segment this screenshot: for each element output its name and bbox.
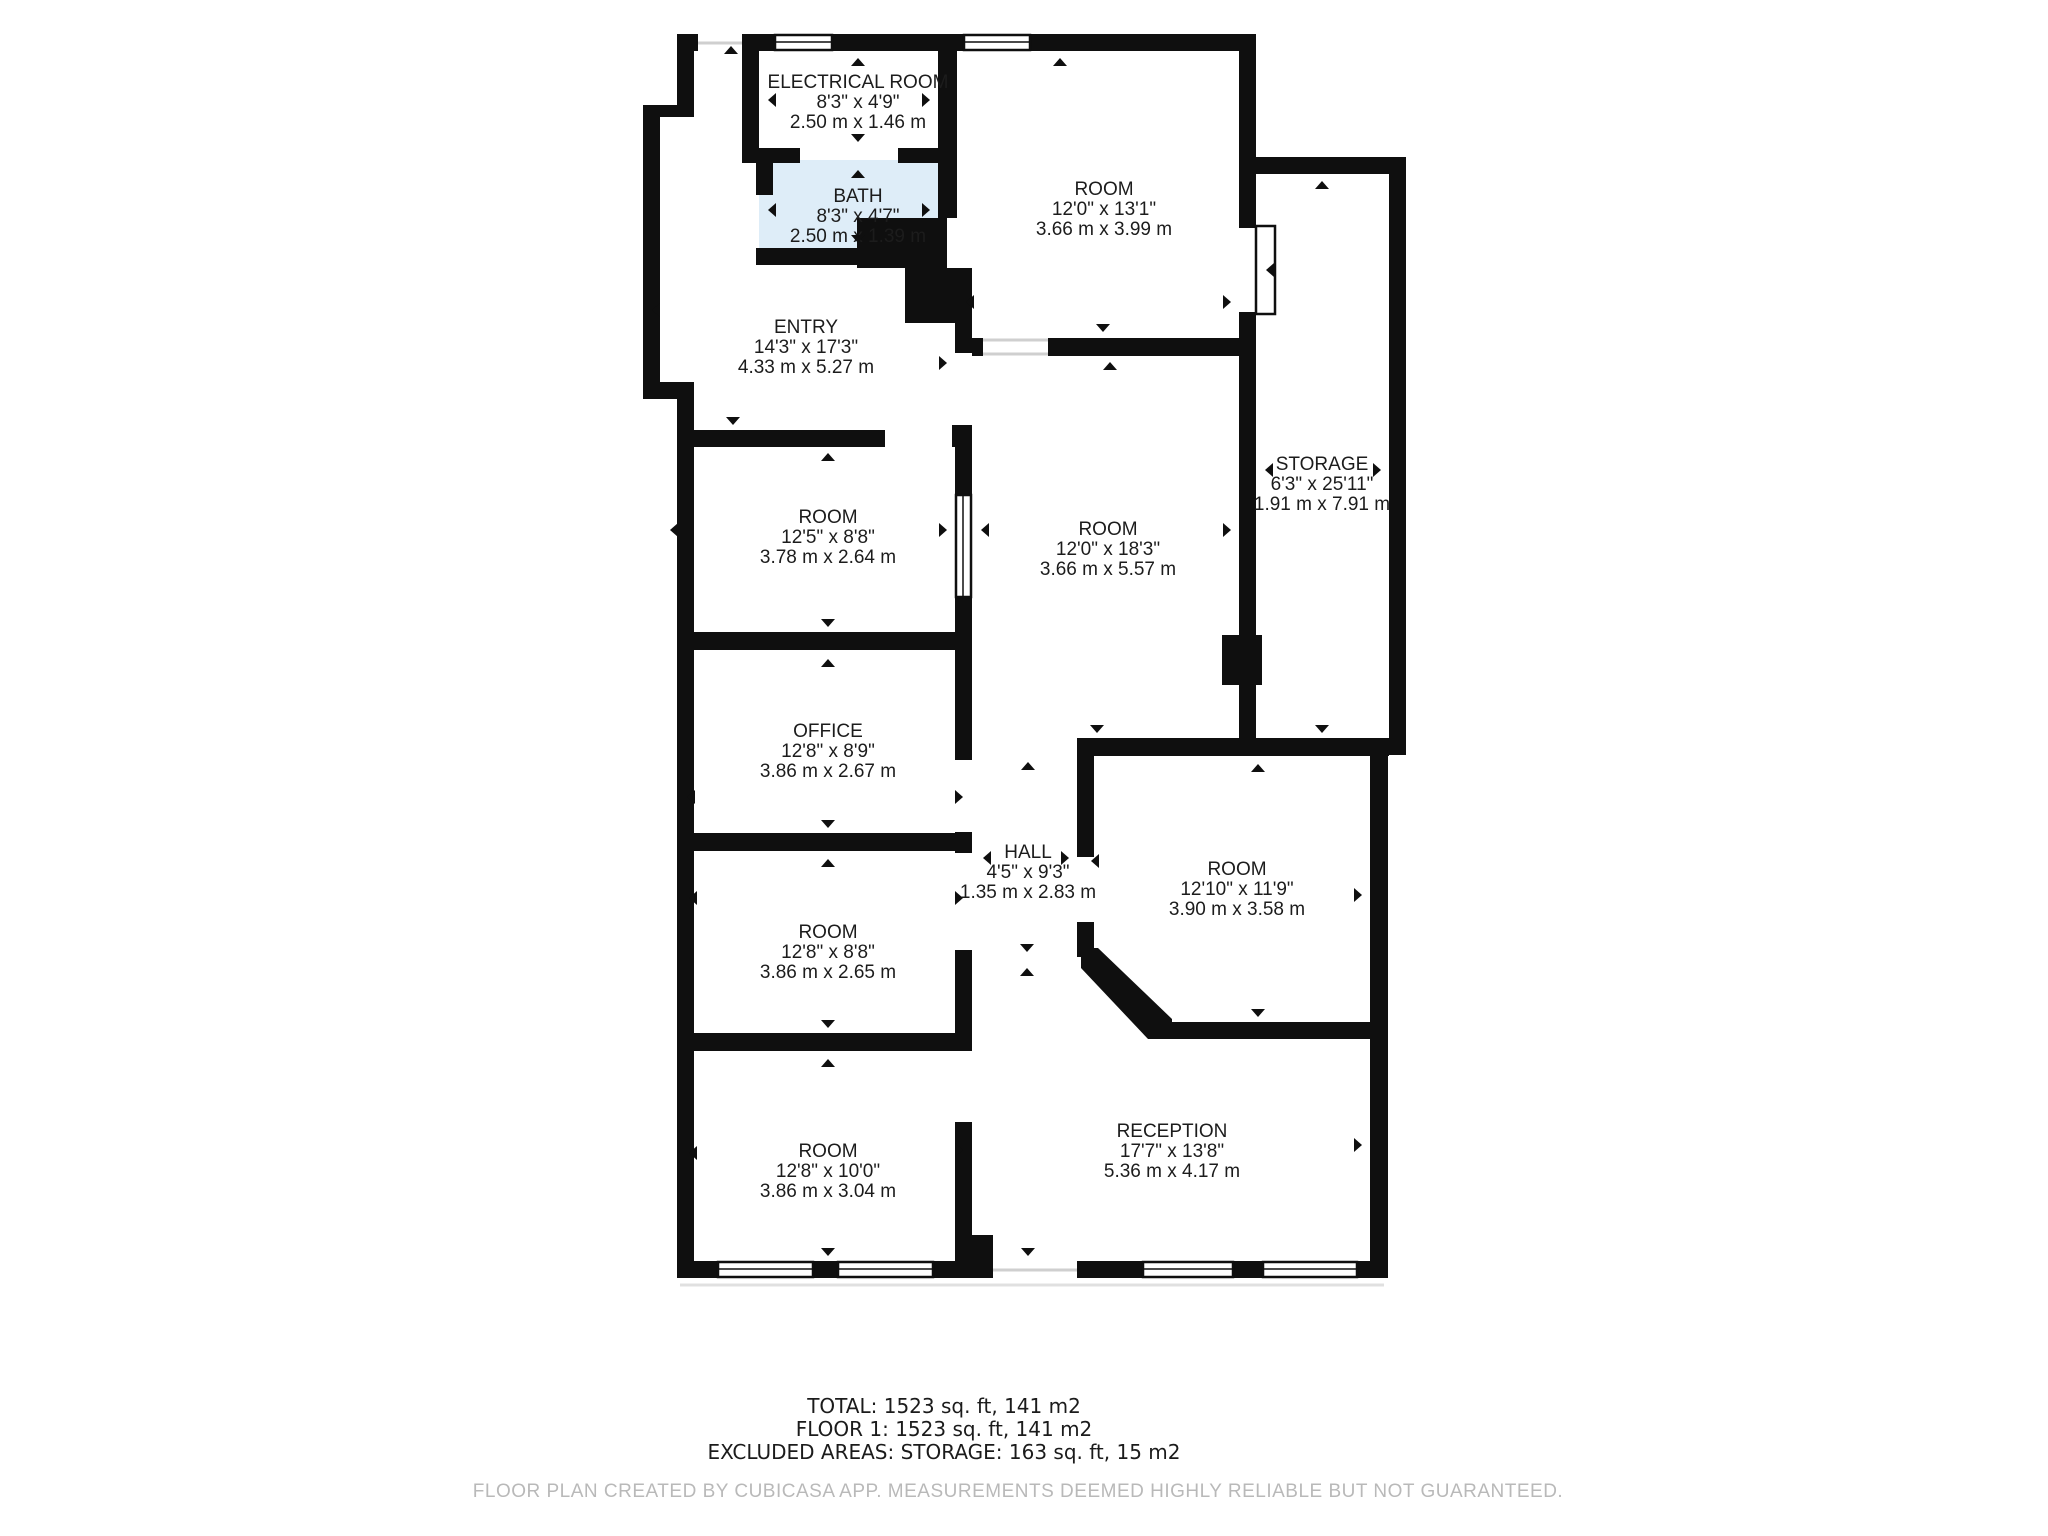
measure-arrow-icon: [821, 859, 835, 867]
measure-arrow-icon: [1096, 324, 1110, 332]
room-name: ROOM: [798, 922, 857, 943]
room-metric: 3.86 m x 2.67 m: [760, 761, 896, 782]
measure-arrow-icon: [821, 619, 835, 627]
measure-arrow-icon: [1315, 181, 1329, 189]
window-bottom-2: [838, 1262, 933, 1277]
room-imperial: 6'3" x 25'11": [1271, 474, 1374, 495]
summary-floor: FLOOR 1: 1523 sq. ft, 141 m2: [796, 1417, 1093, 1441]
measure-arrow-icon: [821, 820, 835, 828]
room-imperial: 12'10" x 11'9": [1180, 879, 1293, 900]
room-metric: 3.86 m x 3.04 m: [760, 1181, 896, 1202]
measure-arrow-icon: [1020, 944, 1034, 952]
room-metric: 3.90 m x 3.58 m: [1169, 899, 1305, 920]
measure-arrow-icon: [670, 523, 678, 537]
measure-arrow-icon: [851, 134, 865, 142]
room-metric: 2.50 m x 1.46 m: [790, 112, 926, 133]
measure-arrow-icon: [1251, 1009, 1265, 1017]
window-bottom-3: [1143, 1262, 1233, 1277]
room-metric: 3.78 m x 2.64 m: [760, 547, 896, 568]
disclaimer-text: FLOOR PLAN CREATED BY CUBICASA APP. MEAS…: [473, 1481, 1563, 1502]
measure-arrow-icon: [1090, 725, 1104, 733]
measure-arrow-icon: [1265, 463, 1273, 477]
room-name: ROOM: [1074, 179, 1133, 200]
measure-arrow-icon: [1223, 523, 1231, 537]
room-imperial: 8'3" x 4'7": [816, 206, 899, 227]
room-name: ROOM: [798, 1141, 857, 1162]
measure-arrow-icon: [724, 46, 738, 54]
room-imperial: 14'3" x 17'3": [754, 337, 858, 358]
room-label-room-center: ROOM 12'0" x 18'3" 3.66 m x 5.57 m: [1040, 519, 1176, 580]
measure-arrow-icon: [1354, 1138, 1362, 1152]
room-label-entry: ENTRY 14'3" x 17'3" 4.33 m x 5.27 m: [738, 317, 874, 378]
measure-arrow-icon: [1354, 888, 1362, 902]
window-interior: [956, 495, 971, 597]
room-imperial: 12'8" x 8'8": [781, 942, 875, 963]
room-imperial: 12'0" x 18'3": [1056, 539, 1160, 560]
walls: [643, 34, 1406, 1278]
room-metric: 3.66 m x 5.57 m: [1040, 559, 1176, 580]
room-name: OFFICE: [793, 721, 863, 742]
room-name: ROOM: [1078, 519, 1137, 540]
room-imperial: 12'8" x 10'0": [776, 1161, 880, 1182]
measure-arrow-icon: [981, 523, 989, 537]
floor-plan-canvas: ELECTRICAL ROOM 8'3" x 4'9" 2.50 m x 1.4…: [0, 0, 2048, 1536]
floor-plan-page: ELECTRICAL ROOM 8'3" x 4'9" 2.50 m x 1.4…: [0, 0, 2048, 1536]
measure-arrow-icon: [1315, 725, 1329, 733]
disclaimer: FLOOR PLAN CREATED BY CUBICASA APP. MEAS…: [473, 1481, 1563, 1502]
room-label-hall: HALL 4'5" x 9'3" 1.35 m x 2.83 m: [960, 842, 1096, 903]
area-summary: TOTAL: 1523 sq. ft, 141 m2 FLOOR 1: 1523…: [707, 1394, 1180, 1464]
measure-arrow-icon: [1020, 968, 1034, 976]
room-name: ROOM: [1207, 859, 1266, 880]
room-imperial: 8'3" x 4'9": [816, 92, 899, 113]
room-imperial: 12'8" x 8'9": [781, 741, 875, 762]
measure-arrow-icon: [1053, 58, 1067, 66]
room-label-room-w1: ROOM 12'5" x 8'8" 3.78 m x 2.64 m: [760, 507, 896, 568]
room-imperial: 12'5" x 8'8": [781, 527, 875, 548]
room-label-electrical: ELECTRICAL ROOM 8'3" x 4'9" 2.50 m x 1.4…: [768, 72, 949, 133]
room-label-office: OFFICE 12'8" x 8'9" 3.86 m x 2.67 m: [760, 721, 896, 782]
room-name: ROOM: [798, 507, 857, 528]
room-label-room-ne: ROOM 12'0" x 13'1" 3.66 m x 3.99 m: [1036, 179, 1172, 240]
measure-arrow-icon: [768, 93, 776, 107]
room-metric: 4.33 m x 5.27 m: [738, 357, 874, 378]
measure-arrow-icon: [1251, 764, 1265, 772]
room-name: BATH: [833, 186, 882, 207]
room-metric: 5.36 m x 4.17 m: [1104, 1161, 1240, 1182]
window-top-1: [775, 35, 832, 50]
room-imperial: 12'0" x 13'1": [1052, 199, 1156, 220]
measure-arrow-icon: [821, 1248, 835, 1256]
room-label-storage: STORAGE 6'3" x 25'11" 1.91 m x 7.91 m: [1254, 454, 1390, 515]
summary-total: TOTAL: 1523 sq. ft, 141 m2: [806, 1394, 1081, 1418]
measure-arrow-icon: [821, 1059, 835, 1067]
measure-arrow-icon: [1021, 762, 1035, 770]
measure-arrow-icon: [922, 93, 930, 107]
window-bottom-1: [718, 1262, 813, 1277]
measure-arrow-icon: [851, 58, 865, 66]
room-metric: 1.35 m x 2.83 m: [960, 882, 1096, 903]
room-label-reception: RECEPTION 17'7" x 13'8" 5.36 m x 4.17 m: [1104, 1121, 1240, 1182]
measure-arrow-icon: [1103, 362, 1117, 370]
room-imperial: 17'7" x 13'8": [1120, 1141, 1224, 1162]
room-label-room-w3: ROOM 12'8" x 10'0" 3.86 m x 3.04 m: [760, 1141, 896, 1202]
measure-arrow-icon: [955, 790, 963, 804]
measure-arrow-icon: [821, 1020, 835, 1028]
room-metric: 3.66 m x 3.99 m: [1036, 219, 1172, 240]
room-metric: 1.91 m x 7.91 m: [1254, 494, 1390, 515]
measure-arrow-icon: [726, 417, 740, 425]
room-name: STORAGE: [1276, 454, 1369, 475]
room-imperial: 4'5" x 9'3": [986, 862, 1069, 883]
window-top-2: [964, 35, 1030, 50]
room-metric: 3.86 m x 2.65 m: [760, 962, 896, 983]
measure-arrow-icon: [1021, 1248, 1035, 1256]
room-name: ELECTRICAL ROOM: [768, 72, 949, 93]
measure-arrow-icon: [821, 659, 835, 667]
room-label-room-e: ROOM 12'10" x 11'9" 3.90 m x 3.58 m: [1169, 859, 1305, 920]
room-label-room-w2: ROOM 12'8" x 8'8" 3.86 m x 2.65 m: [760, 922, 896, 983]
window-bottom-4: [1263, 1262, 1357, 1277]
summary-excluded: EXCLUDED AREAS: STORAGE: 163 sq. ft, 15 …: [707, 1440, 1180, 1464]
measure-arrow-icon: [1223, 295, 1231, 309]
room-name: HALL: [1004, 842, 1052, 863]
measure-arrow-icon: [939, 523, 947, 537]
measure-arrow-icon: [1373, 463, 1381, 477]
measure-arrow-icon: [939, 356, 947, 370]
room-name: ENTRY: [774, 317, 838, 338]
measure-arrow-icon: [821, 453, 835, 461]
room-name: RECEPTION: [1117, 1121, 1228, 1142]
